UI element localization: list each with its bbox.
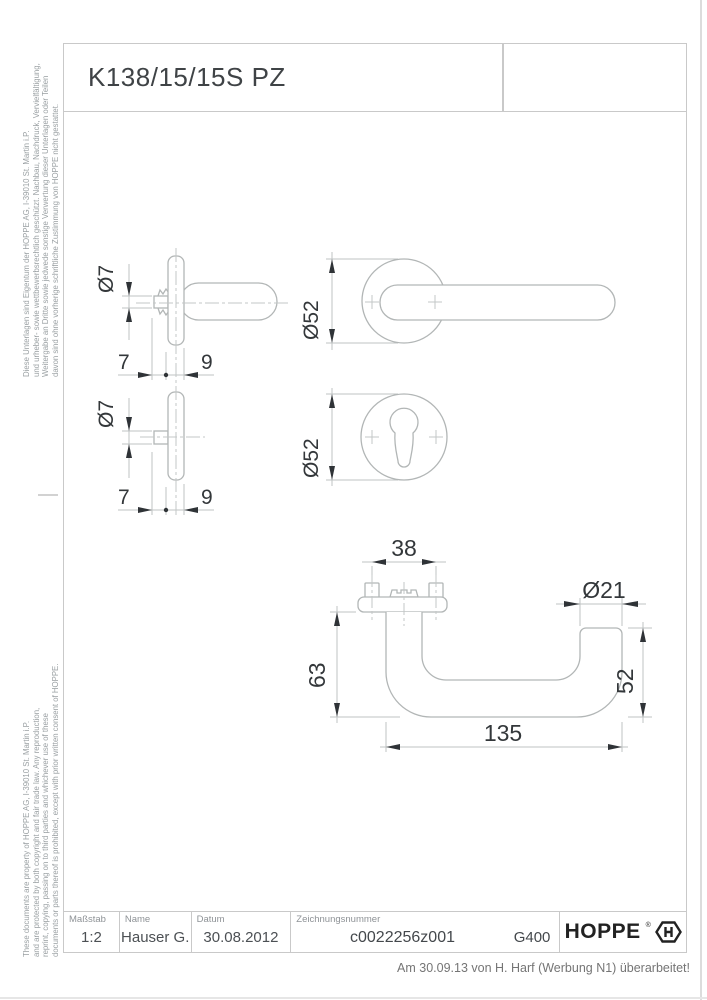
dim-offset-7: 7 (118, 351, 130, 374)
pz-keyhole (390, 408, 418, 467)
scale-cell: Maßstab 1:2 (64, 912, 119, 952)
dim-offset-7-2: 7 (118, 486, 130, 509)
dim-projection-63: 63 (304, 662, 330, 688)
technical-drawing: Ø7 7 9 Ø52 (0, 0, 707, 1000)
scale-label: Maßstab (64, 912, 119, 925)
dim-length-135: 135 (484, 720, 522, 746)
dim-screw-spacing-38: 38 (391, 535, 417, 561)
view-handle-top: 38 Ø21 63 52 135 (304, 535, 652, 752)
dim-offset-9: 9 (201, 351, 213, 374)
dim-keyrose-d52: Ø52 (300, 438, 323, 478)
drawing-number-label: Zeichnungsnummer (291, 912, 559, 925)
brand-wordmark: HOPPE (565, 920, 641, 944)
revision-note: Am 30.09.13 von H. Harf (Werbung N1) übe… (397, 961, 690, 975)
dim-rose-d52: Ø52 (300, 300, 323, 340)
drawing-number-value: c0022256z001 (291, 929, 513, 947)
title-block-bottom: Maßstab 1:2 Name Hauser G. Datum 30.08.2… (63, 911, 687, 953)
drawing-sheet: { "sheet": { "product_code": "K138/15/15… (0, 0, 707, 1000)
view-key-rose-side: Ø7 7 9 (95, 386, 214, 516)
date-label: Datum (192, 912, 291, 925)
view-key-rose-front: Ø52 (300, 388, 447, 486)
finish-code: G400 (514, 929, 560, 946)
view-rose-front-handle: Ø52 (300, 252, 615, 350)
scale-value: 1:2 (64, 925, 119, 952)
brand-cell: HOPPE® (559, 912, 686, 952)
dim-spindle-d7: Ø7 (95, 265, 118, 293)
dim-height-52: 52 (612, 668, 638, 694)
drawing-number-cell: Zeichnungsnummer c0022256z001 G400 (290, 912, 559, 952)
date-value: 30.08.2012 (192, 925, 291, 952)
dim-grip-d21: Ø21 (582, 577, 625, 603)
hoppe-hexagon-logo-icon (655, 920, 682, 944)
name-label: Name (120, 912, 191, 925)
name-cell: Name Hauser G. (119, 912, 191, 952)
dim-offset-9-2: 9 (201, 486, 213, 509)
view-handle-side: Ø7 7 9 (95, 248, 290, 383)
registered-mark: ® (646, 922, 651, 929)
dim-spindle-d7-2: Ø7 (95, 400, 118, 428)
date-cell: Datum 30.08.2012 (191, 912, 291, 952)
name-value: Hauser G. (120, 925, 191, 952)
